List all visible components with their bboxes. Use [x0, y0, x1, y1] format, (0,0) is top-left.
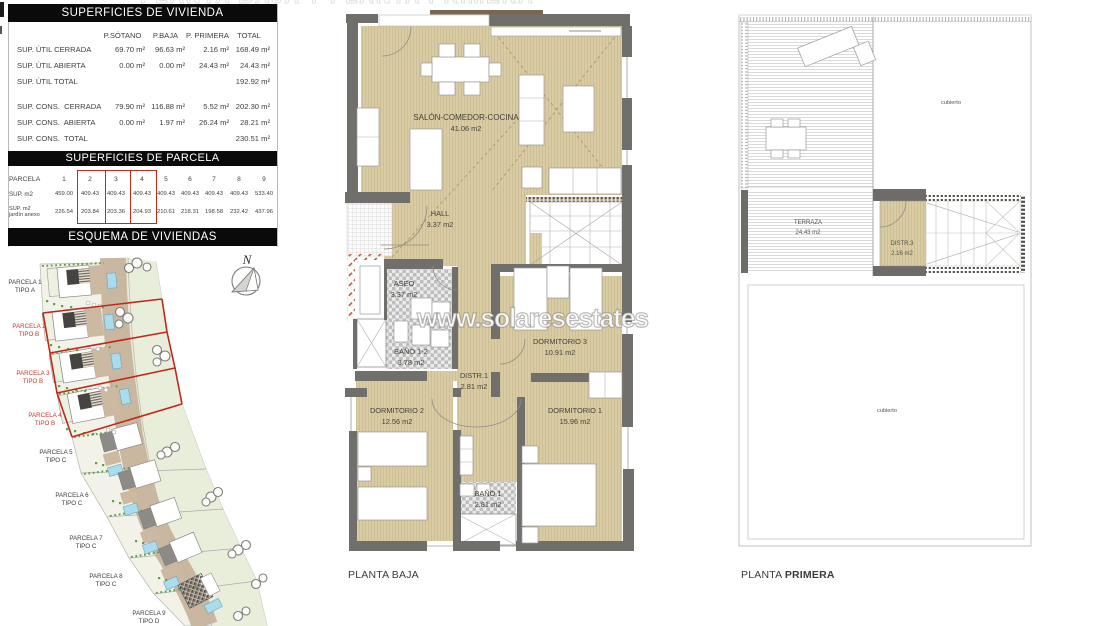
- svg-text:TIPO C: TIPO C: [76, 543, 97, 550]
- svg-text:N: N: [242, 252, 253, 267]
- svg-text:PARCELA 3: PARCELA 3: [16, 370, 50, 377]
- svg-text:DORMITORIO 3: DORMITORIO 3: [533, 337, 587, 346]
- svg-text:TIPO C: TIPO C: [46, 457, 67, 464]
- svg-text:3.37 m2: 3.37 m2: [391, 290, 418, 299]
- svg-text:SALÓN-COMEDOR-COCINA: SALÓN-COMEDOR-COCINA: [413, 113, 519, 122]
- svg-text:TERRAZA: TERRAZA: [794, 220, 822, 226]
- svg-text:PARCELA 7: PARCELA 7: [69, 535, 103, 542]
- svg-text:3.78 m2: 3.78 m2: [398, 358, 425, 367]
- svg-text:2.81 m2: 2.81 m2: [461, 382, 488, 391]
- svg-text:TIPO D: TIPO D: [139, 618, 160, 625]
- svg-text:12.56 m2: 12.56 m2: [382, 417, 413, 426]
- svg-text:TIPO C: TIPO C: [62, 500, 83, 507]
- svg-text:cubierto: cubierto: [877, 408, 897, 414]
- svg-text:BAÑO 1-2: BAÑO 1-2: [394, 347, 428, 356]
- svg-text:DISTR.1: DISTR.1: [460, 371, 488, 380]
- svg-text:PARCELA 9: PARCELA 9: [132, 610, 166, 617]
- svg-text:ASEO: ASEO: [394, 279, 415, 288]
- svg-text:41.06 m2: 41.06 m2: [451, 124, 482, 133]
- svg-text:10.91 m2: 10.91 m2: [545, 348, 576, 357]
- svg-text:TIPO B: TIPO B: [19, 331, 39, 338]
- svg-text:PARCELA 2: PARCELA 2: [12, 323, 46, 330]
- svg-text:BAÑO 1: BAÑO 1: [474, 489, 501, 498]
- svg-text:DORMITORIO 2: DORMITORIO 2: [370, 406, 424, 415]
- svg-text:TIPO C: TIPO C: [96, 581, 117, 588]
- svg-text:24.43 m2: 24.43 m2: [795, 230, 821, 236]
- svg-text:TIPO A: TIPO A: [15, 287, 36, 294]
- svg-text:15.96 m2: 15.96 m2: [560, 417, 591, 426]
- svg-text:PARCELA 8: PARCELA 8: [89, 573, 123, 580]
- svg-text:DORMITORIO 1: DORMITORIO 1: [548, 406, 602, 415]
- svg-text:DISTR.3: DISTR.3: [890, 241, 914, 247]
- svg-text:2.81 m2: 2.81 m2: [475, 500, 502, 509]
- svg-text:PARCELA 6: PARCELA 6: [55, 492, 89, 499]
- svg-text:2.16 m2: 2.16 m2: [891, 251, 913, 257]
- svg-text:PARCELA 1: PARCELA 1: [8, 279, 42, 286]
- svg-text:cubierto: cubierto: [941, 100, 961, 106]
- svg-text:HALL: HALL: [431, 209, 450, 218]
- svg-text:3.37 m2: 3.37 m2: [427, 220, 454, 229]
- svg-text:TIPO B: TIPO B: [35, 420, 55, 427]
- svg-text:PARCELA 5: PARCELA 5: [39, 449, 73, 456]
- svg-text:TIPO B: TIPO B: [23, 378, 43, 385]
- svg-text:PARCELA 4: PARCELA 4: [28, 412, 62, 419]
